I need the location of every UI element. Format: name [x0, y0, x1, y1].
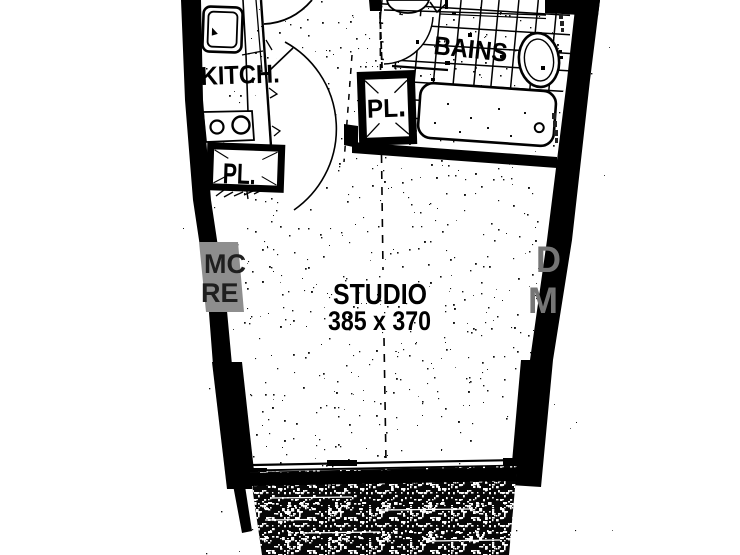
svg-text:MC: MC — [204, 249, 246, 279]
svg-text:M: M — [528, 280, 558, 321]
svg-text:PL.: PL. — [222, 158, 256, 191]
svg-text:PL: PL — [366, 93, 398, 124]
svg-text:RE: RE — [201, 278, 239, 308]
svg-text:KITCH.: KITCH. — [200, 58, 280, 91]
svg-text:385 x 370: 385 x 370 — [328, 306, 431, 336]
svg-text:D: D — [536, 239, 561, 280]
